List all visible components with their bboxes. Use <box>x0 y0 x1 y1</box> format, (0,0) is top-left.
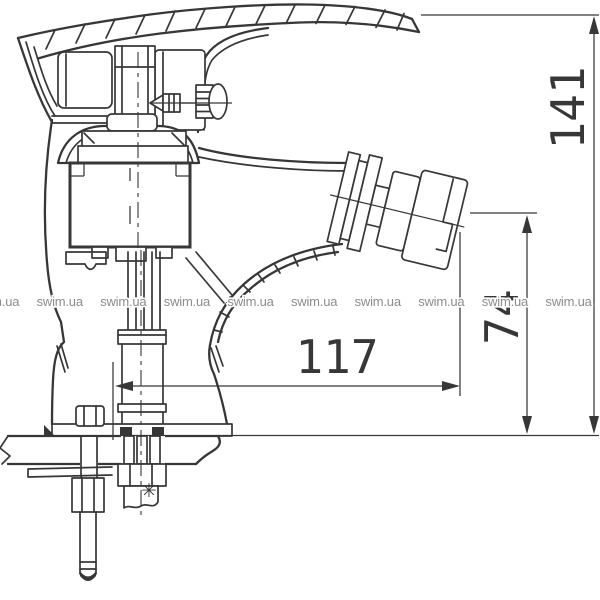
watermark-text: swim.ua <box>418 294 465 309</box>
faucet-technical-drawing: ✳ 141 74 117 swim.uaswim.uaswim.uaswim.u… <box>0 0 600 600</box>
watermark-row: swim.uaswim.uaswim.uaswim.uaswim.uaswim.… <box>0 294 593 309</box>
dimension-label-117: 117 <box>295 330 378 384</box>
aerator <box>319 148 476 274</box>
watermark-text: swim.ua <box>545 294 592 309</box>
fixing-stud-head <box>76 406 104 426</box>
handle-stem <box>115 46 155 124</box>
stud-nut <box>72 478 104 512</box>
watermark-text: swim.ua <box>482 294 529 309</box>
spout-hatching <box>214 247 335 333</box>
dimension-label-141: 141 <box>541 66 595 149</box>
technical-drawing-page: ✳ 141 74 117 swim.uaswim.uaswim.uaswim.u… <box>0 0 600 600</box>
dimension-outlet-height: 74 <box>470 213 537 434</box>
watermark-text: swim.ua <box>164 294 211 309</box>
watermark-text: swim.ua <box>0 294 20 309</box>
adjustment-knob <box>196 84 227 119</box>
watermark-text: swim.ua <box>100 294 147 309</box>
watermark-text: swim.ua <box>227 294 274 309</box>
cartridge-assembly <box>52 46 232 330</box>
watermark-text: swim.ua <box>37 294 84 309</box>
hose-marker-symbol: ✳ <box>141 480 157 502</box>
handle-wing <box>18 38 57 122</box>
watermark-text: swim.ua <box>291 294 338 309</box>
watermark-text: swim.ua <box>355 294 402 309</box>
